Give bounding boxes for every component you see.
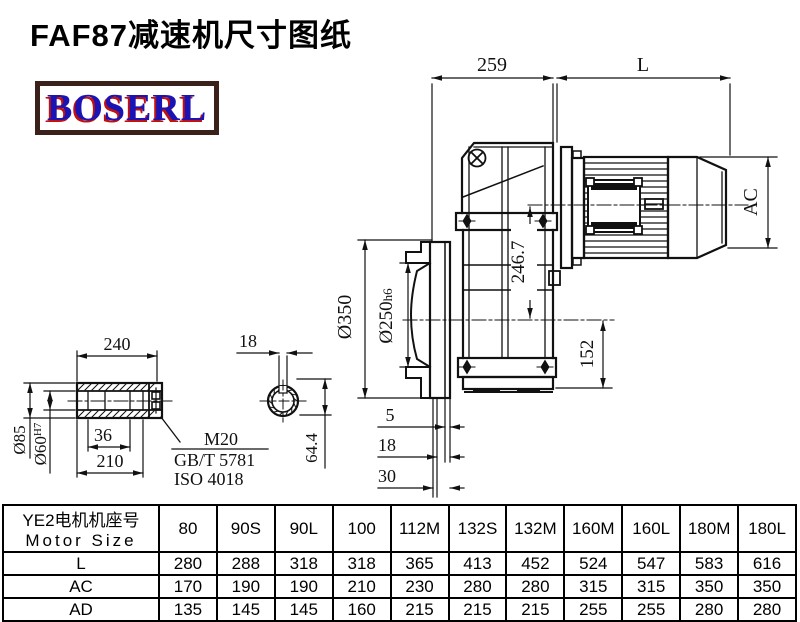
table-header-row: YE2电机机座号 Motor Size 80 90S 90L 100 112M … — [3, 505, 796, 552]
svg-text:GB/T 5781: GB/T 5781 — [174, 450, 255, 470]
table-cell: 315 — [564, 575, 622, 598]
table-cell: 616 — [738, 552, 796, 575]
screw-icons — [459, 214, 553, 375]
col-160L: 160L — [622, 505, 680, 552]
table-cell: 583 — [680, 552, 738, 575]
table-row-AC: AC 170 190 190 210 230 280 280 315 315 3… — [3, 575, 796, 598]
table-header-motor-size: YE2电机机座号 Motor Size — [3, 505, 159, 552]
table-cell: 210 — [333, 575, 391, 598]
dim-36-210: 36 210 — [77, 420, 143, 477]
svg-text:AC: AC — [740, 188, 762, 216]
table-cell: 365 — [391, 552, 449, 575]
svg-text:152: 152 — [577, 340, 598, 369]
row-label-AC: AC — [3, 575, 159, 598]
col-90S: 90S — [217, 505, 275, 552]
dim-flange-thickness: 5 18 30 — [378, 398, 464, 497]
table-cell: 280 — [159, 552, 217, 575]
main-view: 259 L — [334, 54, 777, 497]
dim-spigot-dia: Ø250h6 — [376, 263, 430, 367]
col-180L: 180L — [738, 505, 796, 552]
dim-key-depth: 64.4 — [297, 379, 331, 468]
table-cell: 315 — [622, 575, 680, 598]
centerlines — [403, 205, 748, 320]
header-cn: YE2电机机座号 — [4, 506, 158, 531]
col-90L: 90L — [275, 505, 333, 552]
table-cell: 547 — [622, 552, 680, 575]
table-row-AD: AD 135 145 145 160 215 215 215 255 255 2… — [3, 598, 796, 621]
table-cell: 413 — [449, 552, 507, 575]
svg-text:Ø250h6: Ø250h6 — [376, 288, 397, 344]
table-cell: 135 — [159, 598, 217, 621]
svg-text:36: 36 — [94, 425, 112, 445]
dim-AC: AC — [700, 157, 777, 248]
dim-240: 240 — [77, 334, 157, 381]
table-cell: 280 — [680, 598, 738, 621]
col-132S: 132S — [449, 505, 507, 552]
svg-text:18: 18 — [378, 435, 396, 455]
motor — [561, 147, 726, 268]
svg-text:Ø60H7: Ø60H7 — [31, 422, 50, 465]
table-cell: 280 — [449, 575, 507, 598]
table-cell: 452 — [506, 552, 564, 575]
table-cell: 215 — [506, 598, 564, 621]
svg-text:30: 30 — [378, 466, 396, 486]
svg-text:246.7: 246.7 — [508, 241, 529, 284]
bolt-icon — [469, 150, 486, 167]
svg-text:Ø85: Ø85 — [10, 425, 29, 454]
col-160M: 160M — [564, 505, 622, 552]
table-cell: 524 — [564, 552, 622, 575]
shaft-section-view: 18 64.4 — [237, 331, 331, 468]
svg-text:64.4: 64.4 — [302, 433, 321, 463]
header-en: Motor Size — [4, 531, 158, 551]
col-112M: 112M — [391, 505, 449, 552]
table-cell: 215 — [449, 598, 507, 621]
row-label-AD: AD — [3, 598, 159, 621]
svg-text:210: 210 — [97, 451, 124, 471]
table-cell: 190 — [217, 575, 275, 598]
dim-259: 259 — [477, 54, 507, 76]
thread-callout: M20 GB/T 5781 ISO 4018 — [161, 417, 268, 489]
table-cell: 255 — [564, 598, 622, 621]
table-cell: 190 — [275, 575, 333, 598]
svg-text:M20: M20 — [204, 429, 238, 449]
table-cell: 215 — [391, 598, 449, 621]
dim-152: 152 — [556, 321, 612, 388]
svg-text:18: 18 — [239, 331, 257, 351]
table-cell: 145 — [217, 598, 275, 621]
table-cell: 350 — [680, 575, 738, 598]
dim-key-18: 18 — [237, 331, 312, 356]
table-cell: 280 — [506, 575, 564, 598]
table-cell: 145 — [275, 598, 333, 621]
table-cell: 280 — [738, 598, 796, 621]
table-cell: 230 — [391, 575, 449, 598]
col-180M: 180M — [680, 505, 738, 552]
table-cell: 160 — [333, 598, 391, 621]
dim-bore-60: Ø60H7 — [31, 391, 75, 473]
dim-L: L — [637, 54, 649, 76]
dim-246-7: 246.7 — [508, 207, 537, 318]
table-cell: 288 — [217, 552, 275, 575]
svg-text:5: 5 — [386, 405, 395, 425]
col-80: 80 — [159, 505, 217, 552]
table-row-L: L 280 288 318 318 365 413 452 524 547 58… — [3, 552, 796, 575]
motor-size-table: YE2电机机座号 Motor Size 80 90S 90L 100 112M … — [2, 504, 797, 622]
table-cell: 318 — [275, 552, 333, 575]
col-100: 100 — [333, 505, 391, 552]
svg-text:240: 240 — [104, 334, 131, 354]
table-cell: 350 — [738, 575, 796, 598]
table-cell: 318 — [333, 552, 391, 575]
shaft-detail-view: 240 Ø85 — [10, 334, 268, 489]
col-132M: 132M — [506, 505, 564, 552]
svg-text:ISO 4018: ISO 4018 — [174, 469, 244, 489]
table-cell: 170 — [159, 575, 217, 598]
row-label-L: L — [3, 552, 159, 575]
table-cell: 255 — [622, 598, 680, 621]
svg-text:Ø350: Ø350 — [334, 295, 356, 339]
